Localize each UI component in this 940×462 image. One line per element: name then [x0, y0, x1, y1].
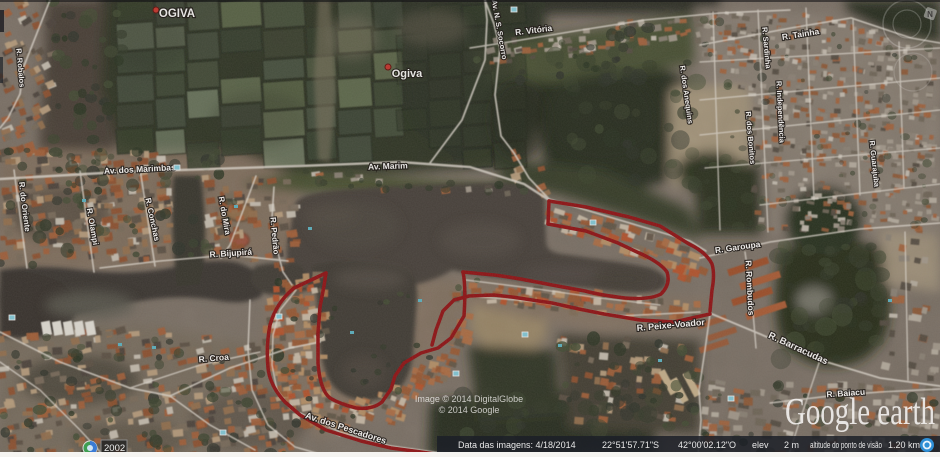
svg-text:22°51'57.71"S: 22°51'57.71"S: [602, 440, 659, 450]
svg-text:42°00'02.12"O: 42°00'02.12"O: [678, 440, 736, 450]
svg-text:Data das imagens: 4/18/2014: Data das imagens: 4/18/2014: [458, 440, 576, 450]
svg-text:elev: elev: [752, 440, 769, 450]
svg-text:altitude do ponto de visão: altitude do ponto de visão: [810, 440, 882, 450]
svg-text:1.20 km: 1.20 km: [888, 440, 920, 450]
svg-text:2 m: 2 m: [784, 440, 799, 450]
